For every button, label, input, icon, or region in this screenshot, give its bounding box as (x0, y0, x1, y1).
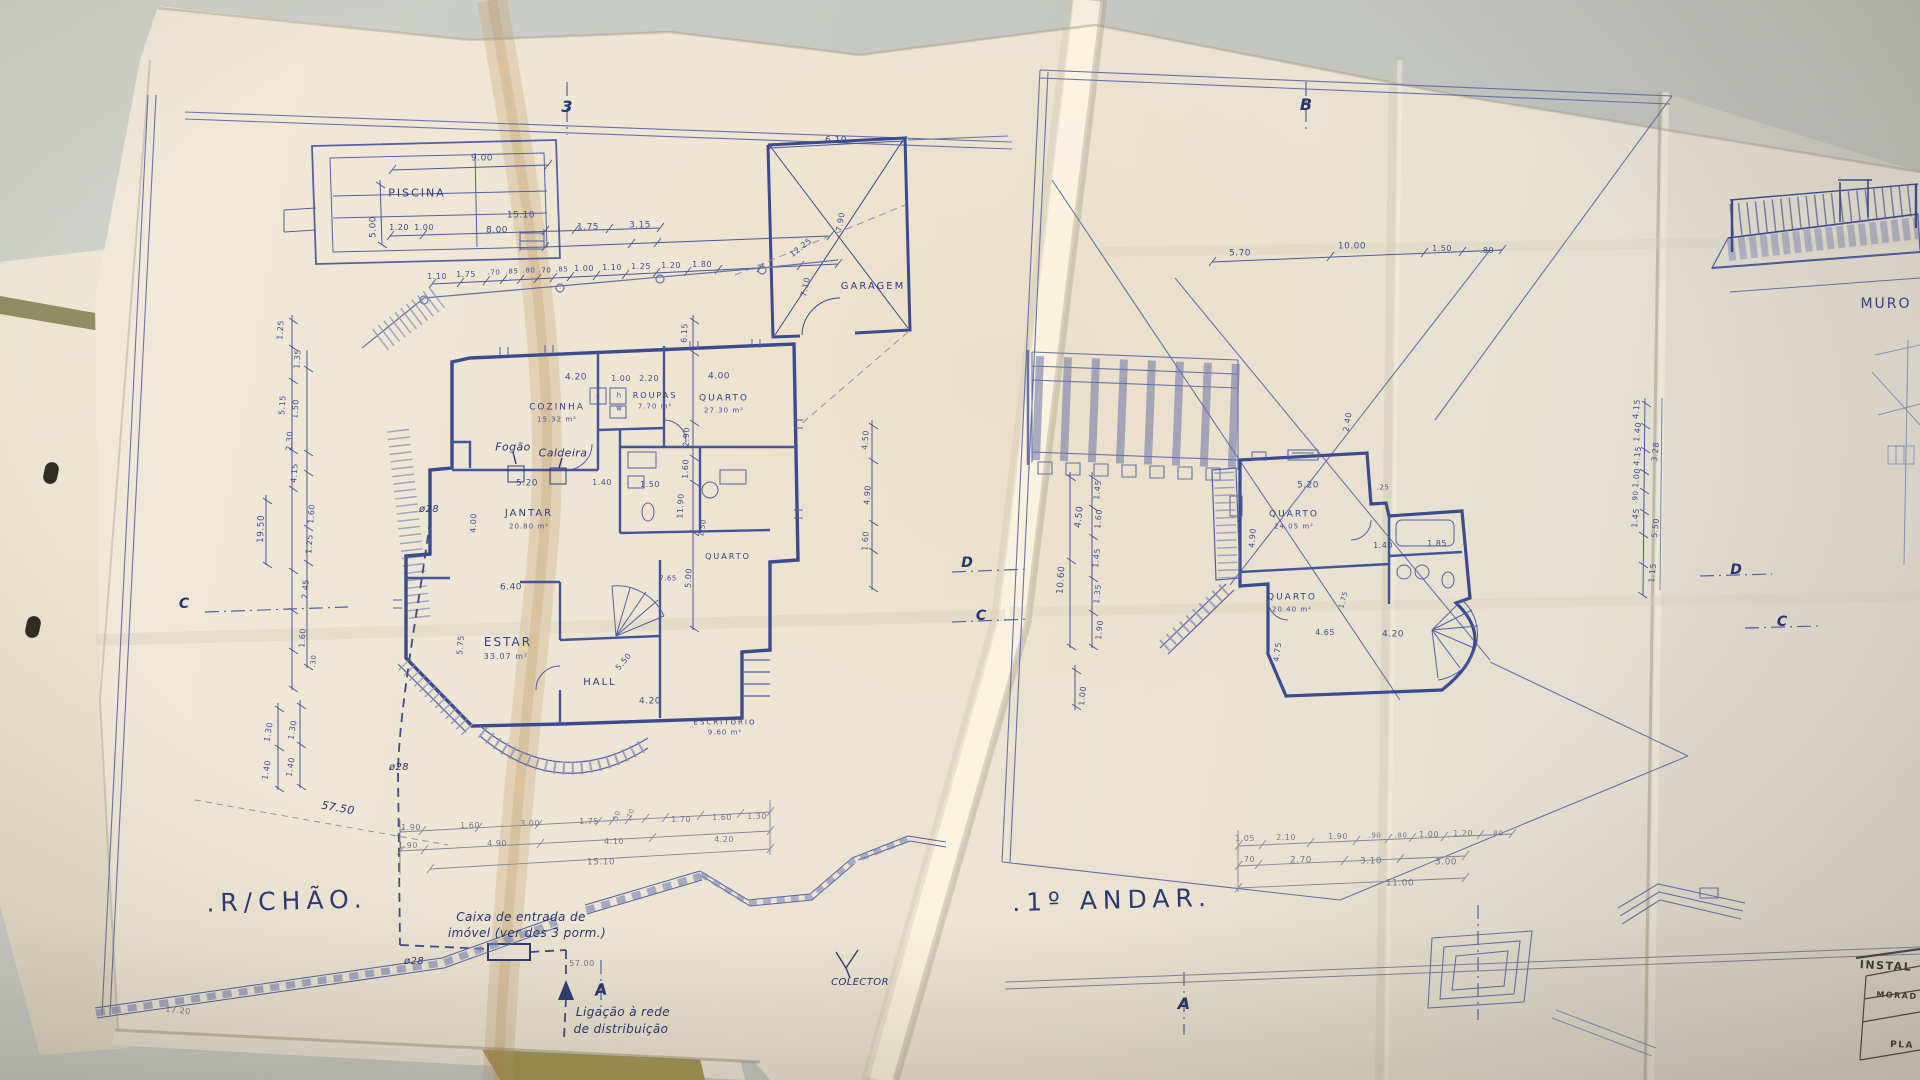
dimension-label: 5.20 (516, 480, 538, 489)
dimension-label: 4.65 (1315, 629, 1335, 637)
dimension-label: 1.60 (307, 504, 316, 524)
dimension-label: 1.60 (712, 814, 732, 822)
dimension-label: .80 (523, 268, 536, 275)
dimension-label: 4.90 (487, 840, 507, 848)
room-area-label: 33.07 m² (484, 653, 528, 661)
dimension-label: 1.30 (747, 813, 767, 821)
room-label: ESTAR (484, 636, 532, 648)
dimension-label: 10.60 (1057, 566, 1068, 595)
dimension-label: 5.50 (1651, 518, 1661, 539)
dimension-label: 1.40 (592, 479, 612, 487)
dimension-label: 1.60 (1094, 509, 1104, 530)
dimension-label: 1.30 (263, 722, 274, 743)
room-label: GARAGEM (841, 282, 906, 292)
dimension-label: 6.15 (680, 323, 689, 343)
dimension-label: 1.75 (1338, 591, 1349, 610)
dimension-label: 5.70 (1229, 250, 1251, 259)
room-area-label: 9.60 m² (708, 730, 742, 737)
dimension-label: 57.00 (569, 960, 594, 968)
dimension-label: 1.45 (1093, 480, 1103, 501)
room-label: HALL (583, 678, 617, 688)
dimension-label: 2.10 (1276, 834, 1296, 842)
dimension-label: 1.30 (287, 720, 298, 741)
dimension-label: .70 (1241, 856, 1255, 864)
room-area-label: 15.32 m² (537, 417, 577, 424)
dimension-label: 4.90 (1248, 528, 1258, 548)
dimension-label: 4.00 (708, 373, 730, 382)
room-area-label: 20.80 m² (509, 524, 549, 531)
dimension-label: 5.15 (278, 395, 287, 415)
dimension-label: 15.10 (507, 212, 535, 221)
dimension-label: 1.60 (681, 459, 690, 479)
dimension-label: 1.35 (293, 349, 302, 369)
dimension-label: 3.15 (629, 222, 651, 231)
dimension-label: 3.00 (520, 820, 540, 828)
room-label: COZINHA (529, 404, 585, 413)
dimension-label: .70 (488, 270, 501, 277)
dimension-label: 11.90 (676, 493, 685, 519)
dimension-label: 1.00 (1078, 686, 1088, 707)
room-label: QUARTO (699, 395, 749, 404)
dimension-label: 1.00 (414, 224, 434, 232)
room-label: QUARTO (705, 553, 751, 561)
dimension-label: 4.20 (1382, 631, 1404, 640)
dimension-label: 4.50 (1074, 506, 1085, 529)
dimension-label: 5.75 (456, 635, 466, 655)
dimension-label: 1.25 (631, 263, 651, 271)
dimension-label: 1.60 (298, 628, 307, 648)
handwritten-annotation: imóvel (ver des 3 porm.) (448, 927, 606, 939)
handwritten-annotation: 57.50 (321, 800, 356, 817)
title-block-text: PLA (1890, 1041, 1914, 1051)
section-marker: D (1730, 563, 1742, 577)
handwritten-annotation: ø28 (404, 957, 424, 967)
dimension-label: .85 (556, 267, 569, 274)
dimension-label: 1.50 (1432, 245, 1452, 253)
dimension-label: 2.20 (639, 375, 659, 383)
section-marker: A (594, 981, 608, 998)
dimension-label: 1.40 (261, 760, 272, 781)
dimension-label: 2.70 (1290, 857, 1312, 866)
dimension-label: .90 (1632, 490, 1640, 503)
room-label: MURO (1860, 297, 1911, 311)
title-block-text: MORAD (1876, 991, 1918, 1001)
dimension-label: 1.90 (401, 824, 421, 832)
dimension-label: 5.00 (684, 568, 693, 588)
dimension-label: 3.10 (1360, 858, 1382, 867)
plan-title-ground-floor: .R/CHÃO. (206, 884, 368, 917)
dimension-label: 1.75 (456, 271, 476, 279)
handwritten-annotation: Ligação à rede (576, 1006, 670, 1018)
dimension-label: 1.05 (1235, 835, 1255, 843)
dimension-label: 7.10 (800, 276, 812, 297)
dimension-label: 1.40 (285, 757, 296, 778)
dimension-label: 1.00 (611, 375, 631, 383)
dimension-label: 3.28 (1651, 442, 1661, 463)
dimension-label: 1.75 (579, 818, 599, 826)
dimension-label: 4.15 (290, 463, 299, 483)
dimension-label: .50 (612, 810, 623, 824)
dimension-label: 8.00 (486, 227, 508, 236)
dimension-label: 6.40 (500, 584, 522, 593)
dimension-label: 1.45 (1092, 548, 1102, 569)
dimension-label: 1.25 (305, 534, 314, 554)
handwritten-annotation: ø28 (389, 763, 409, 773)
handwritten-annotation: Fogão (495, 442, 531, 453)
dimension-label: 5.50 (615, 652, 634, 672)
room-label: PISCINA (388, 188, 446, 199)
dimension-label: .25 (1377, 485, 1390, 492)
dimension-label: 5.00 (370, 216, 379, 238)
dimension-label: 1.90 (1328, 833, 1348, 841)
dimension-label: .85 (506, 269, 519, 276)
handwritten-annotation: de distribuição (574, 1023, 669, 1035)
dimension-label: 6.10 (825, 137, 847, 146)
dimension-label: 1.75 (577, 224, 599, 233)
dimension-label: 1.00 (574, 265, 594, 273)
title-block-text: INSTAL (1860, 959, 1913, 973)
dimension-label: 2.30 (285, 431, 294, 451)
dimension-label: 1.20 (1453, 830, 1473, 838)
room-area-label: 20.40 m² (1272, 607, 1312, 614)
dimension-label: 12.25 (789, 237, 814, 259)
handwritten-annotation: ø28 (419, 505, 439, 515)
dimension-label: 1.60 (460, 822, 480, 830)
dimension-label: 1.50 (640, 481, 660, 489)
tiny-label: c (596, 394, 600, 401)
dimension-label: 15.10 (587, 859, 615, 868)
room-label: QUARTO (1269, 511, 1319, 520)
dimension-label: 1.90 (1095, 620, 1105, 641)
dimension-label: .30 (310, 654, 318, 667)
dimension-label: 7.65 (659, 576, 677, 583)
dimension-label: 10.00 (1338, 243, 1366, 252)
dimension-label: 1.20 (389, 224, 409, 232)
handwritten-annotation: Caldeira (539, 448, 588, 459)
dimension-label: 4.00 (470, 513, 479, 533)
dimension-label: 2.45 (301, 579, 310, 599)
dimension-label: .70 (539, 268, 552, 275)
dimension-label: 7.90 (835, 212, 846, 233)
dimension-label: 1.50 (698, 519, 708, 538)
dimension-label: 1.35 (1093, 584, 1103, 605)
dimension-label: 1.25 (276, 320, 285, 340)
tiny-label: h (617, 393, 621, 400)
dimension-label: 1.10 (427, 273, 447, 281)
dimension-label: 19.50 (257, 515, 267, 544)
dimension-label: .70 (626, 808, 637, 822)
annotation-layer: .R/CHÃO. .1º ANDAR. PISCINA9.005.001.201… (0, 0, 1920, 1080)
dimension-label: 1.45 (1631, 508, 1641, 529)
dimension-label: 1.90 (398, 842, 418, 850)
dimension-label: 1.60 (861, 531, 870, 551)
section-marker: B (1300, 97, 1312, 113)
handwritten-annotation: COLECTOR (831, 978, 889, 988)
dimension-label: 4.20 (565, 374, 587, 383)
dimension-label: 4.20 (639, 698, 661, 707)
section-marker: D (961, 556, 973, 570)
section-marker: 3 (561, 99, 572, 115)
section-marker: C (179, 597, 189, 611)
room-label: JANTAR (505, 509, 553, 519)
section-marker: C (1777, 615, 1787, 629)
dimension-label: 1.15 (1648, 563, 1658, 584)
dimension-label: 2.90 (682, 427, 691, 447)
dimension-label: 1.20 (661, 262, 681, 270)
dimension-label: 1.70 (671, 816, 691, 824)
dimension-label: 4.90 (863, 485, 872, 505)
dimension-label: 11.00 (1386, 880, 1414, 889)
dimension-label: 9.00 (471, 155, 493, 164)
dimension-label: .80 (1395, 833, 1408, 840)
section-marker: A (1178, 996, 1190, 1012)
dimension-label: 2.40 (1342, 412, 1353, 433)
dimension-label: 17.20 (165, 1006, 191, 1017)
dimension-label: 4.10 (604, 838, 624, 846)
dimension-label: 1.50 (291, 399, 300, 419)
room-label: ESCRITÓRIO (694, 720, 757, 727)
dimension-label: 4.75 (1273, 642, 1284, 663)
dimension-label: .80 (1491, 831, 1504, 838)
dimension-label: .80 (1480, 247, 1494, 255)
room-label: ROUPAS (633, 392, 678, 400)
dimension-label: 1.00 (1632, 468, 1642, 489)
room-label: QUARTO (1267, 594, 1317, 603)
room-area-label: 7.70 m² (638, 404, 672, 411)
tiny-label: w (616, 406, 622, 413)
handwritten-annotation: Caixa de entrada de (456, 911, 586, 923)
dimension-label: 1.40 (1373, 542, 1393, 550)
photo-of-blueprint-on-desk: .R/CHÃO. .1º ANDAR. PISCINA9.005.001.201… (0, 0, 1920, 1080)
dimension-label: 1.00 (1419, 831, 1439, 839)
dimension-label: .90 (1369, 833, 1382, 840)
dimension-label: 4.20 (714, 836, 734, 844)
dimension-label: 1.40 (1633, 422, 1643, 443)
dimension-label: 4.15 (1633, 446, 1643, 467)
dimension-label: 4.15 (1632, 399, 1642, 420)
room-area-label: 27.30 m² (704, 408, 744, 415)
dimension-label: 1.85 (1427, 540, 1447, 548)
room-area-label: 24.05 m² (1274, 524, 1314, 531)
section-marker: C (976, 609, 986, 623)
dimension-label: 3.00 (1435, 859, 1457, 868)
dimension-label: 4.50 (861, 430, 870, 450)
plan-title-first-floor: .1º ANDAR. (1012, 883, 1212, 917)
dimension-label: 1.80 (692, 261, 712, 269)
dimension-label: 1.10 (602, 264, 622, 272)
dimension-label: 5.20 (1297, 482, 1319, 491)
